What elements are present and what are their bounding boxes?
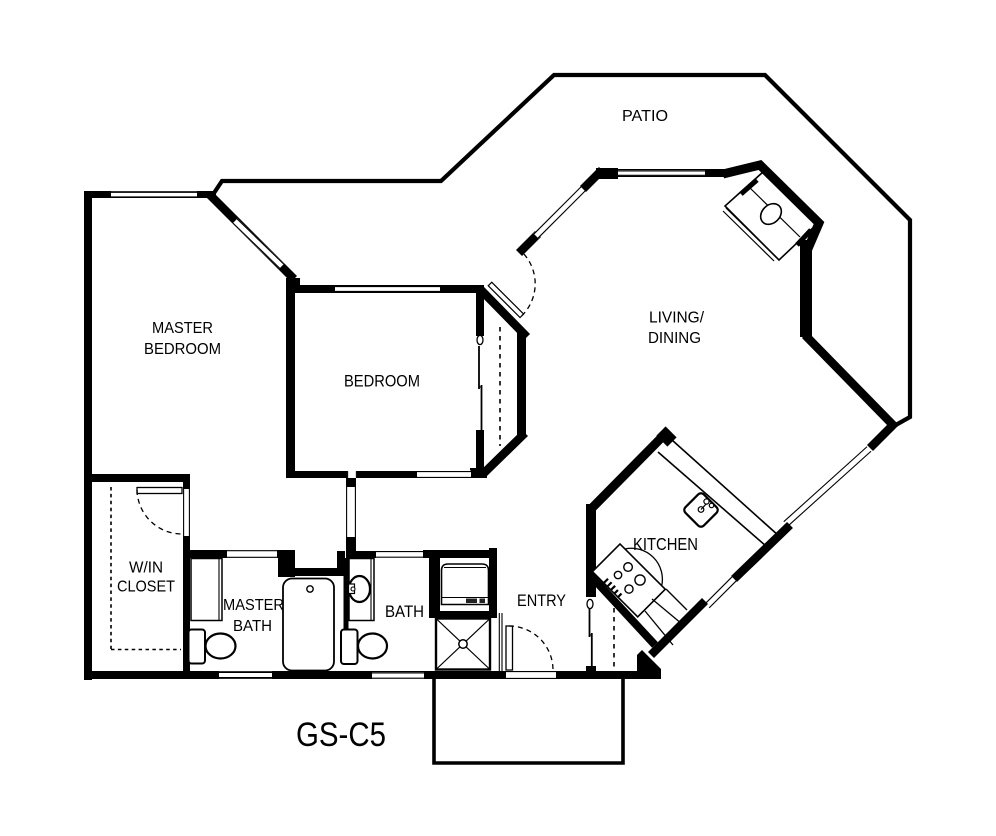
svg-text:BATH: BATH <box>233 618 272 635</box>
svg-text:BEDROOM: BEDROOM <box>344 372 420 391</box>
svg-text:DINING: DINING <box>648 330 701 347</box>
svg-text:BATH: BATH <box>385 602 424 621</box>
svg-text:ENTRY: ENTRY <box>517 592 566 610</box>
svg-text:BEDROOM: BEDROOM <box>144 341 221 358</box>
svg-text:GS-C5: GS-C5 <box>296 716 386 754</box>
svg-text:MASTER: MASTER <box>152 320 213 337</box>
svg-text:MASTER: MASTER <box>223 597 284 614</box>
svg-text:LIVING/: LIVING/ <box>649 309 705 326</box>
svg-text:PATIO: PATIO <box>622 108 668 125</box>
svg-text:W/IN: W/IN <box>129 560 163 577</box>
svg-text:KITCHEN: KITCHEN <box>633 534 698 554</box>
svg-text:CLOSET: CLOSET <box>117 579 175 596</box>
